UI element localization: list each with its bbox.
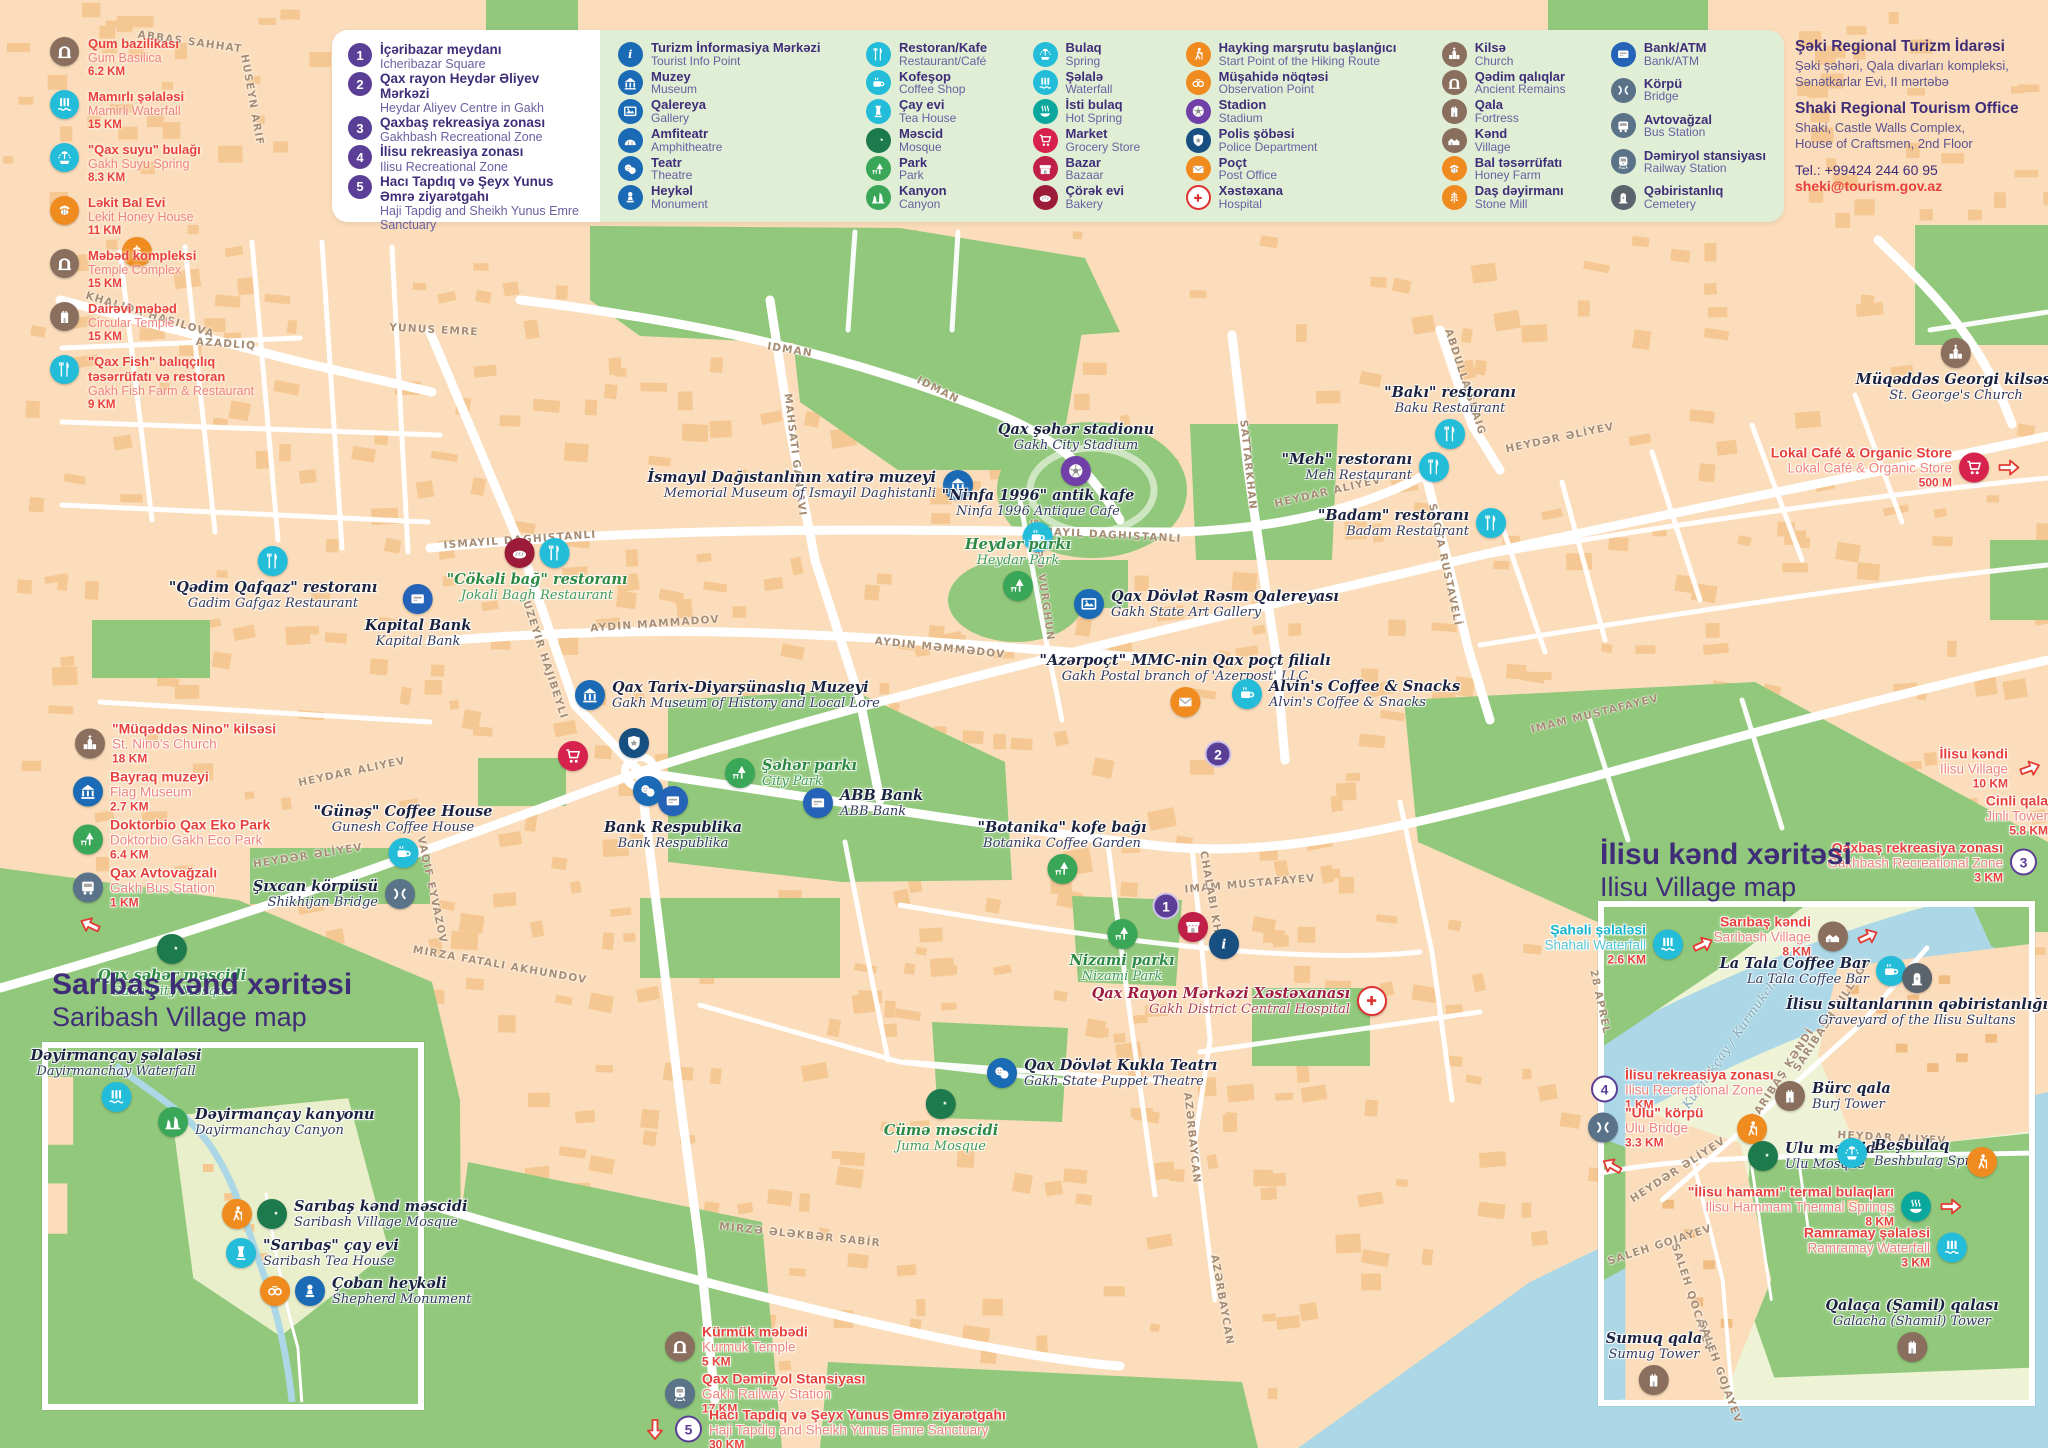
post-icon: [1186, 156, 1211, 181]
sidebar-item: Ləkit Bal EviLekit Honey House11 KM: [50, 195, 270, 237]
sidebar-item-text: Ləkit Bal EviLekit Honey House11 KM: [88, 195, 194, 237]
legend-item: KəndVillage: [1442, 127, 1566, 154]
legend-label-en: Monument: [651, 198, 708, 211]
legend-label-en: Hot Spring: [1066, 112, 1123, 125]
legend-item-text: AmfiteatrAmphitheatre: [651, 127, 722, 154]
legend-label-en: Railway Station: [1644, 162, 1766, 175]
cemetery-icon: [1611, 185, 1636, 210]
legend-item: Çörək eviBakery: [1033, 184, 1141, 211]
mosque-icon: [866, 128, 891, 153]
bazaar-icon: [1033, 156, 1058, 181]
legend-label-az: Qax rayon Heydər Əliyev Mərkəzi: [380, 71, 590, 101]
legend-item: Bal təsərrüfatıHoney Farm: [1442, 156, 1566, 183]
remains-icon: [50, 249, 79, 278]
number-badge: 4: [348, 145, 372, 169]
sidebar-item-text: "Qax suyu" bulağıGakh Suyu Spring8.3 KM: [88, 142, 201, 184]
tea-icon: [866, 99, 891, 124]
legend-item: Qədim qalıqlarAncient Remains: [1442, 70, 1566, 97]
legend-label-en: Bazaar: [1066, 169, 1104, 182]
legend-column: Hayking marşrutu başlanğıcıStart Point o…: [1186, 41, 1397, 211]
poi-distance: 15 KM: [88, 278, 196, 290]
poi-distance: 9 KM: [88, 399, 270, 411]
remains-icon: [50, 37, 79, 66]
poi-name-en: Temple Complex: [88, 263, 196, 277]
poi-distance: 11 KM: [88, 225, 194, 237]
legend-item: BazarBazaar: [1033, 156, 1141, 183]
legend-label-en: Canyon: [899, 198, 947, 211]
saribash-inset-map: [42, 1042, 424, 1410]
hotspring-icon: [1033, 99, 1058, 124]
legend-label-az: Şəlalə: [1066, 70, 1113, 84]
numbered-legend-text: Qaxbaş rekreasiya zonasıGakhbash Recreat…: [380, 115, 545, 144]
legend-label-en: Ilisu Recreational Zone: [380, 160, 523, 174]
legend-column: BulaqSpringŞəlaləWaterfallİsti bulaqHot …: [1033, 41, 1141, 211]
map-canvas: ABBAS SAHHATHUSEYN ARIFKHALIDA HASILOVAA…: [0, 0, 2048, 1448]
legend-label-en: Bridge: [1644, 90, 1682, 103]
numbered-legend-text: İlisu rekreasiya zonasıIlisu Recreationa…: [380, 144, 523, 173]
legend-item-text: KofeşopCoffee Shop: [899, 70, 966, 97]
spring-icon: [1033, 42, 1058, 67]
legend-item: Bank/ATMBank/ATM: [1611, 41, 1766, 68]
legend-label-az: Hayking marşrutu başlanğıcı: [1219, 41, 1397, 55]
legend-label-en: Bus Station: [1644, 126, 1712, 139]
legend-item-text: Çörək eviBakery: [1066, 184, 1125, 211]
legend-item: MarketGrocery Store: [1033, 127, 1141, 154]
legend-label-en: Hospital: [1219, 198, 1283, 211]
honey-icon: [50, 196, 79, 225]
bridge-icon: [1611, 78, 1636, 103]
number-badge: 5: [348, 175, 372, 199]
monument-icon: [618, 185, 643, 210]
legend-label-az: Çay evi: [899, 98, 956, 112]
legend-item-text: Bank/ATMBank/ATM: [1644, 41, 1707, 68]
office-address-en: Shaki, Castle Walls Complex,House of Cra…: [1795, 120, 2045, 153]
legend-label-az: Xəstəxana: [1219, 184, 1283, 198]
gallery-icon: [618, 99, 643, 124]
legend-item-text: QalereyaGallery: [651, 98, 706, 125]
legend-label-en: Stone Mill: [1475, 198, 1564, 211]
bakery-icon: [1033, 185, 1058, 210]
legend-item: HeykəlMonument: [618, 184, 821, 211]
legend-item: ParkPark: [866, 156, 987, 183]
sidebar-item-text: Məbəd kompleksiTemple Complex15 KM: [88, 248, 196, 290]
legend-item-text: MarketGrocery Store: [1066, 127, 1141, 154]
legend-item-text: PoçtPost Office: [1219, 156, 1277, 183]
legend-item-text: Hayking marşrutu başlanğıcıStart Point o…: [1219, 41, 1397, 68]
legend-label-az: Park: [899, 156, 927, 170]
legend-item: Hayking marşrutu başlanğıcıStart Point o…: [1186, 41, 1397, 68]
legend-item: MuzeyMuseum: [618, 70, 821, 97]
info-icon: [618, 42, 643, 67]
legend-item-text: KörpüBridge: [1644, 77, 1682, 104]
police-icon: [1186, 128, 1211, 153]
stadium-icon: [1186, 99, 1211, 124]
legend-label-az: Heykəl: [651, 184, 708, 198]
legend-column: Turizm İnformasiya MərkəziTourist Info P…: [618, 41, 821, 211]
legend-label-az: Muzey: [651, 70, 697, 84]
restaurant-icon: [866, 42, 891, 67]
legend-item-text: Daş dəyirmanıStone Mill: [1475, 184, 1564, 211]
legend-item-text: TeatrTheatre: [651, 156, 692, 183]
legend-label-az: Kanyon: [899, 184, 947, 198]
poi-distance: 8.3 KM: [88, 172, 201, 184]
legend-label-en: Bakery: [1066, 198, 1125, 211]
icon-legend: Turizm İnformasiya MərkəziTourist Info P…: [600, 30, 1784, 222]
numbered-legend-text: Hacı Tapdıq və Şeyx Yunus Əmrə ziyarətga…: [380, 174, 590, 232]
legend-item-text: KilsəChurch: [1475, 41, 1514, 68]
honey-icon: [1442, 156, 1467, 181]
observation-icon: [1186, 70, 1211, 95]
legend-label-en: Theatre: [651, 169, 692, 182]
legend-item: MəscidMosque: [866, 127, 987, 154]
legend-label-en: Ancient Remains: [1475, 83, 1566, 96]
legend-label-az: Kənd: [1475, 127, 1511, 141]
legend-label-az: Stadion: [1219, 98, 1267, 112]
poi-name-en: Gum Basilica: [88, 51, 179, 65]
poi-name-az: Qum bazilikası: [88, 36, 179, 51]
legend-label-az: İlisu rekreasiya zonası: [380, 144, 523, 159]
fortress-icon: [1442, 99, 1467, 124]
poi-name-az: Mamırlı şəlaləsi: [88, 89, 184, 104]
poi-name-en: Lekit Honey House: [88, 210, 194, 224]
legend-label-az: Çörək evi: [1066, 184, 1125, 198]
legend-label-en: Mosque: [899, 141, 943, 154]
sidebar-item-text: Qum bazilikasıGum Basilica6.2 KM: [88, 36, 179, 78]
sidebar-item: Dairəvi məbədCircular Temple15 KM: [50, 301, 270, 343]
legend-item-text: Turizm İnformasiya MərkəziTourist Info P…: [651, 41, 821, 68]
legend-item: KörpüBridge: [1611, 77, 1766, 104]
poi-name-en: Mamirli Waterfall: [88, 104, 184, 118]
canyon-icon: [866, 185, 891, 210]
sidebar-item: "Qax Fish" balıqçılıq təsərrüfatı və res…: [50, 354, 270, 411]
legend-label-az: Market: [1066, 127, 1141, 141]
sidebar-item: Mamırlı şəlaləsiMamirli Waterfall15 KM: [50, 89, 270, 131]
office-title-az: Şəki Regional Turizm İdarəsi: [1795, 38, 2045, 56]
legend-item: Çay eviTea House: [866, 98, 987, 125]
number-badge: 3: [348, 116, 372, 140]
bus-icon: [1611, 113, 1636, 138]
legend-label-en: Park: [899, 169, 927, 182]
poi-distance: 15 KM: [88, 119, 184, 131]
legend-label-az: Teatr: [651, 156, 692, 170]
legend-item: KanyonCanyon: [866, 184, 987, 211]
legend-label-en: Observation Point: [1219, 83, 1329, 96]
bank-icon: [1611, 42, 1636, 67]
legend-label-en: Amphitheatre: [651, 141, 722, 154]
legend-item: StadionStadium: [1186, 98, 1397, 125]
legend-item-text: KanyonCanyon: [899, 184, 947, 211]
legend-label-az: Polis şöbəsi: [1219, 127, 1318, 141]
office-email: sheki@tourism.gov.az: [1795, 178, 2045, 194]
legend-item: İsti bulaqHot Spring: [1033, 98, 1141, 125]
legend-label-az: Qala: [1475, 98, 1519, 112]
spring-icon: [50, 143, 79, 172]
restaurant-icon: [50, 355, 79, 384]
office-title-en: Shaki Regional Tourism Office: [1795, 100, 2045, 118]
theatre-icon: [618, 156, 643, 181]
amphitheatre-icon: [618, 128, 643, 153]
numbered-legend-text: İçəribazar meydanıIcheribazar Square: [380, 42, 502, 71]
numbered-legend-item: 4İlisu rekreasiya zonasıIlisu Recreation…: [348, 144, 590, 173]
legend-item-text: QəbiristanlıqCemetery: [1644, 184, 1723, 211]
sidebar-item: Məbəd kompleksiTemple Complex15 KM: [50, 248, 270, 290]
legend-item: Daş dəyirmanıStone Mill: [1442, 184, 1566, 211]
poi-name-en: Gakh Fish Farm & Restaurant: [88, 384, 270, 398]
legend-item: TeatrTheatre: [618, 156, 821, 183]
legend-item-text: AvtovağzalBus Station: [1644, 113, 1712, 140]
legend-label-az: Məscid: [899, 127, 943, 141]
legend-item-text: XəstəxanaHospital: [1219, 184, 1283, 211]
number-badge: 1: [348, 43, 372, 67]
legend-item-text: ParkPark: [899, 156, 927, 183]
legend-label-en: Waterfall: [1066, 83, 1113, 96]
legend-item: Dəmiryol stansiyasıRailway Station: [1611, 149, 1766, 176]
hiking-icon: [1186, 42, 1211, 67]
legend-item: AvtovağzalBus Station: [1611, 113, 1766, 140]
office-phone: Tel.: +99424 244 60 95: [1795, 162, 2045, 178]
legend-label-az: Poçt: [1219, 156, 1277, 170]
numbered-legend-item: 5Hacı Tapdıq və Şeyx Yunus Əmrə ziyarətg…: [348, 174, 590, 232]
numbered-legend-item: 3Qaxbaş rekreasiya zonasıGakhbash Recrea…: [348, 115, 590, 144]
poi-distance: 15 KM: [88, 331, 177, 343]
legend-label-en: Stadium: [1219, 112, 1267, 125]
hospital-icon: [1186, 185, 1211, 210]
numbered-legend-item: 2Qax rayon Heydər Əliyev MərkəziHeydar A…: [348, 71, 590, 115]
legend-label-az: Kofeşop: [899, 70, 966, 84]
legend-item-text: ŞəlaləWaterfall: [1066, 70, 1113, 97]
legend-label-en: Tea House: [899, 112, 956, 125]
legend-item: BulaqSpring: [1033, 41, 1141, 68]
legend-item: Polis şöbəsiPolice Department: [1186, 127, 1397, 154]
legend-item-text: BulaqSpring: [1066, 41, 1102, 68]
legend-item: XəstəxanaHospital: [1186, 184, 1397, 211]
legend-label-en: Honey Farm: [1475, 169, 1562, 182]
legend-label-az: Hacı Tapdıq və Şeyx Yunus Əmrə ziyarətga…: [380, 174, 590, 204]
poi-distance: 6.2 KM: [88, 66, 179, 78]
legend-item-text: MuzeyMuseum: [651, 70, 697, 97]
legend-label-en: Coffee Shop: [899, 83, 966, 96]
legend-label-az: Bazar: [1066, 156, 1104, 170]
church-icon: [1442, 42, 1467, 67]
legend-label-en: Start Point of the Hiking Route: [1219, 55, 1397, 68]
legend-item-text: BazarBazaar: [1066, 156, 1104, 183]
saribash-inset-title: Sarıbaş kənd xəritəsi Saribash Village m…: [52, 968, 352, 1033]
poi-name-az: Ləkit Bal Evi: [88, 195, 194, 210]
market-icon: [1033, 128, 1058, 153]
legend-item: QalaFortress: [1442, 98, 1566, 125]
legend-item-text: Bal təsərrüfatıHoney Farm: [1475, 156, 1562, 183]
legend-item-text: Restoran/KafeRestaurant/Café: [899, 41, 987, 68]
legend-label-az: Kilsə: [1475, 41, 1514, 55]
legend-item-text: Dəmiryol stansiyasıRailway Station: [1644, 149, 1766, 176]
legend-label-en: Grocery Store: [1066, 141, 1141, 154]
waterfall-icon: [1033, 70, 1058, 95]
legend-column: Bank/ATMBank/ATMKörpüBridgeAvtovağzalBus…: [1611, 41, 1766, 211]
numbered-legend: 1İçəribazar meydanıIcheribazar Square2Qa…: [332, 30, 600, 222]
legend-item: PoçtPost Office: [1186, 156, 1397, 183]
legend-label-az: Müşahidə nöqtəsi: [1219, 70, 1329, 84]
legend-label-az: Qədim qalıqlar: [1475, 70, 1566, 84]
ilisu-inset-map: [1598, 901, 2035, 1406]
legend-item-text: Müşahidə nöqtəsiObservation Point: [1219, 70, 1329, 97]
poi-name-az: Dairəvi məbəd: [88, 301, 177, 316]
legend-label-az: Bal təsərrüfatı: [1475, 156, 1562, 170]
park-icon: [866, 156, 891, 181]
legend-label-az: Qaxbaş rekreasiya zonası: [380, 115, 545, 130]
legend-item: Restoran/KafeRestaurant/Café: [866, 41, 987, 68]
legend-label-az: İsti bulaq: [1066, 98, 1123, 112]
legend-item-text: Çay eviTea House: [899, 98, 956, 125]
legend-label-en: Post Office: [1219, 169, 1277, 182]
legend-item: QalereyaGallery: [618, 98, 821, 125]
legend-label-az: Turizm İnformasiya Mərkəzi: [651, 41, 821, 55]
legend-label-en: Restaurant/Café: [899, 55, 987, 68]
legend-label-az: Avtovağzal: [1644, 113, 1712, 127]
legend-label-en: Museum: [651, 83, 697, 96]
poi-name-en: Gakh Suyu Spring: [88, 157, 201, 171]
legend-label-en: Fortress: [1475, 112, 1519, 125]
legend-item: ŞəlaləWaterfall: [1033, 70, 1141, 97]
legend-label-az: Qəbiristanlıq: [1644, 184, 1723, 198]
legend-item: Turizm İnformasiya MərkəziTourist Info P…: [618, 41, 821, 68]
legend-label-en: Police Department: [1219, 141, 1318, 154]
ilisu-inset-title: İlisu kənd xəritəsi Ilisu Village map: [1600, 838, 1852, 903]
poi-name-az: Məbəd kompleksi: [88, 248, 196, 263]
legend-item-text: MəscidMosque: [899, 127, 943, 154]
sidebar-item: "Qax suyu" bulağıGakh Suyu Spring8.3 KM: [50, 142, 270, 184]
village-icon: [1442, 128, 1467, 153]
remains-icon: [1442, 70, 1467, 95]
numbered-legend-text: Qax rayon Heydər Əliyev MərkəziHeydar Al…: [380, 71, 590, 115]
legend-label-az: Bulaq: [1066, 41, 1102, 55]
legend-item-text: İsti bulaqHot Spring: [1066, 98, 1123, 125]
number-badge: 2: [348, 72, 372, 96]
legend-label-en: Gakhbash Recreational Zone: [380, 130, 545, 144]
tourism-office-info: Şəki Regional Turizm İdarəsi Şəki şəhəri…: [1795, 38, 2045, 194]
legend-label-az: Qalereya: [651, 98, 706, 112]
legend-item: AmfiteatrAmphitheatre: [618, 127, 821, 154]
legend-label-en: Church: [1475, 55, 1514, 68]
legend-label-en: Gallery: [651, 112, 706, 125]
poi-name-az: "Qax Fish" balıqçılıq təsərrüfatı və res…: [88, 354, 270, 384]
legend-label-az: Körpü: [1644, 77, 1682, 91]
legend-item-text: HeykəlMonument: [651, 184, 708, 211]
museum-icon: [618, 70, 643, 95]
legend-item: QəbiristanlıqCemetery: [1611, 184, 1766, 211]
legend-item-text: QalaFortress: [1475, 98, 1519, 125]
legend-item-text: KəndVillage: [1475, 127, 1511, 154]
legend-panel: 1İçəribazar meydanıIcheribazar Square2Qa…: [332, 30, 1784, 222]
railway-icon: [1611, 149, 1636, 174]
legend-column: Restoran/KafeRestaurant/CaféKofeşopCoffe…: [866, 41, 987, 211]
legend-label-az: İçəribazar meydanı: [380, 42, 502, 57]
legend-label-az: Restoran/Kafe: [899, 41, 987, 55]
waterfall-icon: [50, 90, 79, 119]
legend-label-az: Dəmiryol stansiyası: [1644, 149, 1766, 163]
legend-label-az: Bank/ATM: [1644, 41, 1707, 55]
numbered-legend-item: 1İçəribazar meydanıIcheribazar Square: [348, 42, 590, 71]
legend-label-en: Spring: [1066, 55, 1102, 68]
legend-label-en: Heydar Aliyev Centre in Gakh: [380, 101, 590, 115]
legend-column: KilsəChurchQədim qalıqlarAncient Remains…: [1442, 41, 1566, 211]
legend-label-en: Haji Tapdig and Sheikh Yunus Emre Sanctu…: [380, 204, 590, 232]
stonemill-icon: [1442, 185, 1467, 210]
sidebar-item: Qum bazilikasıGum Basilica6.2 KM: [50, 36, 270, 78]
legend-label-en: Village: [1475, 141, 1511, 154]
poi-name-en: Circular Temple: [88, 316, 177, 330]
legend-item: Müşahidə nöqtəsiObservation Point: [1186, 70, 1397, 97]
sidebar-item-text: Mamırlı şəlaləsiMamirli Waterfall15 KM: [88, 89, 184, 131]
legend-item-text: Polis şöbəsiPolice Department: [1219, 127, 1318, 154]
poi-name-az: "Qax suyu" bulağı: [88, 142, 201, 157]
sidebar-poi-list: Qum bazilikasıGum Basilica6.2 KMMamırlı …: [50, 36, 270, 411]
legend-item-text: StadionStadium: [1219, 98, 1267, 125]
legend-label-az: Amfiteatr: [651, 127, 722, 141]
coffee-icon: [866, 70, 891, 95]
fortress-icon: [50, 302, 79, 331]
legend-label-en: Cemetery: [1644, 198, 1723, 211]
legend-label-az: Daş dəyirmanı: [1475, 184, 1564, 198]
legend-label-en: Tourist Info Point: [651, 55, 821, 68]
legend-item: KilsəChurch: [1442, 41, 1566, 68]
legend-label-en: Icheribazar Square: [380, 57, 502, 71]
legend-item-text: Qədim qalıqlarAncient Remains: [1475, 70, 1566, 97]
sidebar-item-text: Dairəvi məbədCircular Temple15 KM: [88, 301, 177, 343]
sidebar-item-text: "Qax Fish" balıqçılıq təsərrüfatı və res…: [88, 354, 270, 411]
legend-label-en: Bank/ATM: [1644, 55, 1707, 68]
legend-item: KofeşopCoffee Shop: [866, 70, 987, 97]
office-address-az: Şəki şəhəri, Qala divarları kompleksi,Sə…: [1795, 58, 2045, 91]
